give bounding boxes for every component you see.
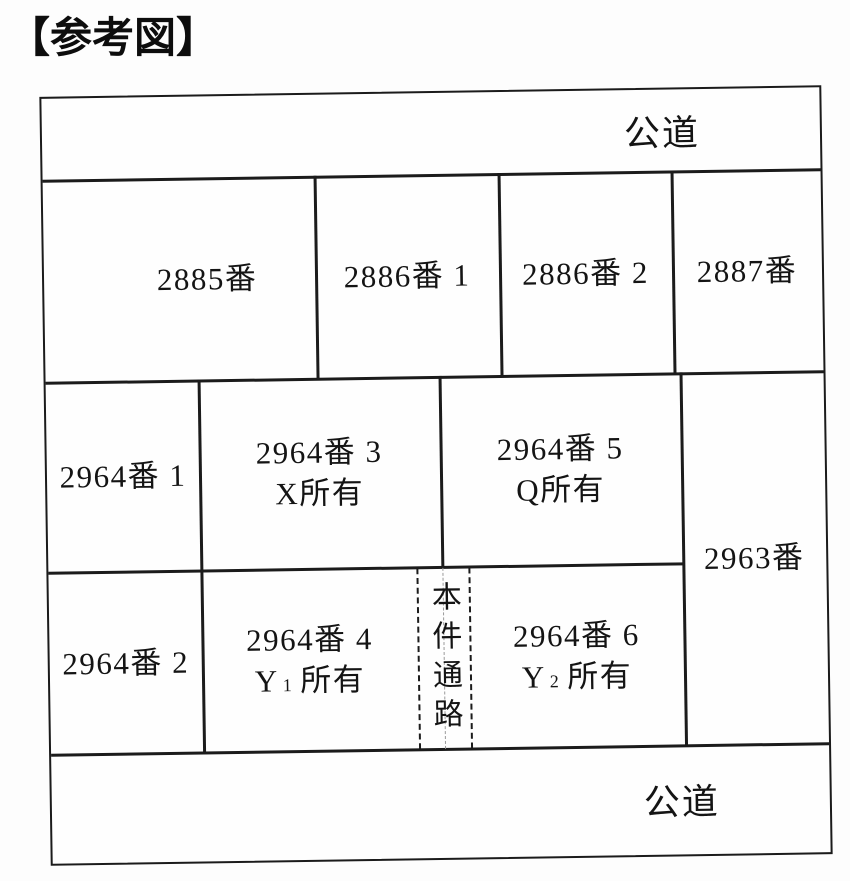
road-bottom-label: 公道 [596,745,768,854]
parcel-2964-2: 2964番 2 [48,572,203,756]
parcel-2964-5-owner: Q所有 [516,469,605,511]
road-bottom-text: 公道 [643,773,720,826]
parcel-2964-6-owner-prefix: Y [522,657,546,698]
parcel-2886-2-label: 2886番 2 [522,252,649,295]
road-top-label: 公道 [581,88,742,171]
parcel-2964-4-owner-suffix: 所有 [300,660,366,702]
parcel-2964-4: 2964番 4 Y 1 所有 [200,568,419,753]
parcel-2963-label: 2963番 [704,537,805,579]
parcel-2887: 2887番 [671,168,824,374]
parcel-diagram: 公道 公道 2885番 2886番 1 2886番 2 2887番 2964番 … [39,85,832,866]
parcel-2886-1-label: 2886番 1 [343,255,470,298]
passage-label: 本件通路 [428,580,460,736]
page-title: 【参考図】 [8,4,218,65]
parcel-2964-4-label: 2964番 4 [246,619,373,662]
parcel-2885-label: 2885番 [157,258,258,300]
parcel-2963: 2963番 [679,370,829,746]
parcel-2964-4-owner: Y 1 所有 [255,660,366,703]
parcel-2964-4-owner-prefix: Y [255,661,279,702]
parcel-2887-label: 2887番 [696,250,797,292]
parcel-2964-3-label: 2964番 3 [255,432,382,475]
parcel-2964-6-owner-suffix: 所有 [567,656,633,698]
parcel-2964-6-label: 2964番 6 [513,615,640,658]
parcel-2885: 2885番 [43,176,317,384]
parcel-2964-3: 2964番 3 X所有 [198,376,442,572]
parcel-2964-2-label: 2964番 2 [62,642,189,685]
parcel-2886-1: 2886番 1 [314,173,501,380]
parcel-2964-6-owner-sub: 2 [550,670,561,694]
parcel-2964-4-owner-sub: 1 [283,674,294,698]
parcel-2964-6-owner: Y 2 所有 [522,656,633,699]
parcel-2964-1: 2964番 1 [46,380,201,574]
parcel-2964-5: 2964番 5 Q所有 [439,372,683,568]
road-top-text: 公道 [624,104,701,157]
passage-strip: 本件通路 [416,568,471,750]
parcel-2964-5-label: 2964番 5 [496,428,623,471]
parcel-2886-2: 2886番 2 [498,170,674,377]
parcel-2964-6: 2964番 6 Y 2 所有 [468,564,685,749]
parcel-2964-3-owner: X所有 [275,473,364,515]
parcel-2964-1-label: 2964番 1 [59,455,186,498]
